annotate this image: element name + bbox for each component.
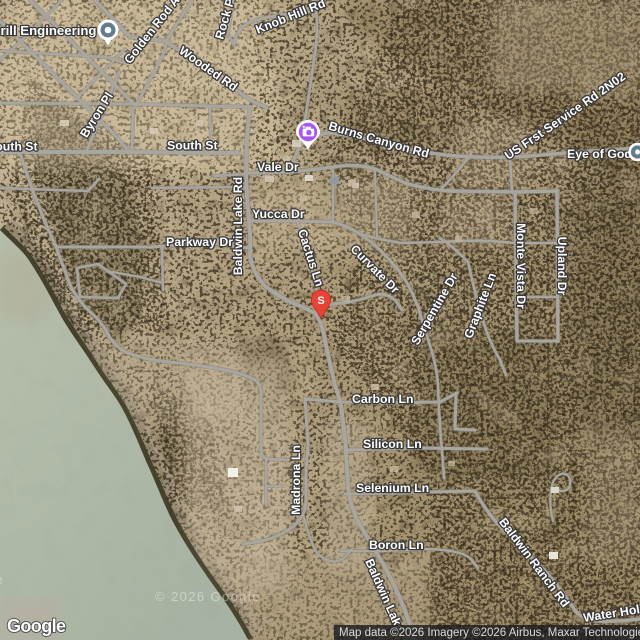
svg-text:Vale Dr: Vale Dr [257, 160, 299, 174]
svg-text:S: S [317, 295, 324, 307]
svg-text:Boron Ln: Boron Ln [369, 538, 424, 552]
svg-text:Madrona Ln: Madrona Ln [289, 445, 303, 515]
svg-text:Upland Dr: Upland Dr [555, 237, 569, 296]
svg-text:Parkway Dr: Parkway Dr [166, 235, 233, 249]
svg-text:Google: Google [7, 616, 66, 636]
svg-text:Eye of God: Eye of God [567, 147, 632, 161]
svg-text:Map data ©2026 Imagery ©2026 A: Map data ©2026 Imagery ©2026 Airbus, Max… [339, 627, 640, 639]
svg-text:Silicon Ln: Silicon Ln [363, 437, 422, 451]
svg-text:Baldwin Lake Rd: Baldwin Lake Rd [231, 177, 245, 275]
svg-text:rill Engineering: rill Engineering [1, 23, 97, 38]
svg-text:South St: South St [167, 139, 218, 153]
svg-text:Monte Vista Dr: Monte Vista Dr [514, 223, 528, 309]
svg-text:Yucca Dr: Yucca Dr [252, 207, 305, 221]
svg-text:South St: South St [0, 140, 38, 154]
svg-text:Carbon Ln: Carbon Ln [352, 392, 413, 406]
svg-text:gle: gle [0, 573, 3, 587]
svg-text:© 2026 Google: © 2026 Google [155, 589, 261, 604]
svg-text:Selenium Ln: Selenium Ln [356, 481, 429, 495]
